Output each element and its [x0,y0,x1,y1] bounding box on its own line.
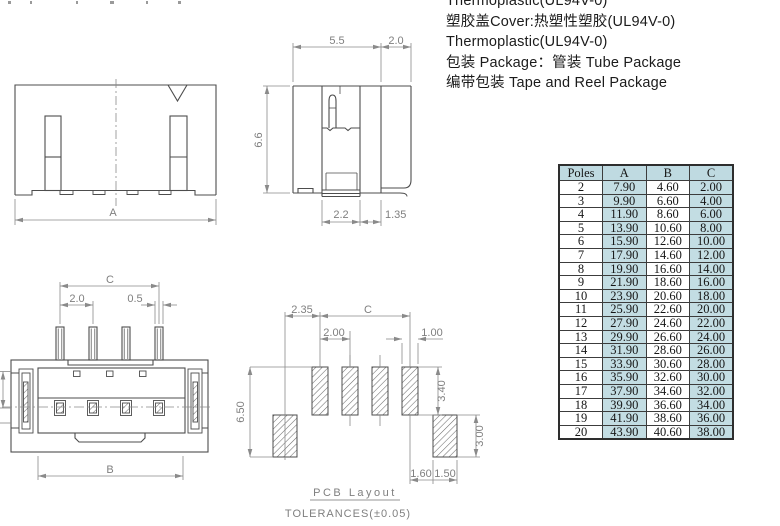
table-row: 39.906.604.00 [559,194,733,208]
table-cell: 34.00 [690,398,734,412]
table-cell: 14.00 [690,262,734,276]
table-cell: 18 [559,398,603,412]
table-cell: 11.90 [603,208,647,222]
table-cell: 19.90 [603,262,647,276]
table-row: 411.908.606.00 [559,208,733,222]
dim-label: 1.60 [410,468,431,480]
table-cell: 9 [559,276,603,290]
column-header: C [690,165,734,181]
dim-label: C [364,304,372,316]
column-header: A [603,165,647,181]
table-cell: 35.90 [603,371,647,385]
table-cell: 2.00 [690,181,734,195]
table-cell: 16.60 [646,262,690,276]
dim-label: 1.00 [421,327,442,339]
bottom-view-drawing: C 2.0 0.5 B [0,270,230,485]
dim-label: 1.35 [385,209,406,221]
table-cell: 12.60 [646,235,690,249]
dim-label: 6.50 [235,401,247,422]
table-cell: 16.00 [690,276,734,290]
table-header: PolesABC [559,165,733,181]
table-row: 1125.9022.6020.00 [559,303,733,317]
table-row: 2043.9040.6038.00 [559,425,733,439]
table-cell: 6 [559,235,603,249]
table-cell: 36.60 [646,398,690,412]
table-cell: 39.90 [603,398,647,412]
table-cell: 36.00 [690,412,734,426]
dim-label: 2.2 [333,209,348,221]
table-row: 615.9012.6010.00 [559,235,733,249]
table-cell: 7 [559,248,603,262]
table-cell: 19 [559,412,603,426]
table-cell: 38.60 [646,412,690,426]
dim-label: A [109,207,117,219]
table-cell: 18.60 [646,276,690,290]
dim-label: 2.0 [69,293,84,305]
dim-label: B [106,464,113,476]
table-row: 1329.9026.6024.00 [559,330,733,344]
table-row: 1533.9030.6028.00 [559,357,733,371]
table-cell: 14.60 [646,248,690,262]
dim-label: 6.6 [253,132,265,147]
table-cell: 34.60 [646,384,690,398]
table-cell: 8.60 [646,208,690,222]
table-cell: 8.00 [690,221,734,235]
table-cell: 8 [559,262,603,276]
table-row: 1737.9034.6032.00 [559,384,733,398]
poles-table: PolesABC 27.904.602.0039.906.604.00411.9… [558,164,734,440]
table-cell: 28.00 [690,357,734,371]
table-cell: 15.90 [603,235,647,249]
table-cell: 12 [559,316,603,330]
table-row: 717.9014.6012.00 [559,248,733,262]
dim-label: C [106,274,114,286]
table-cell: 26.00 [690,344,734,358]
dim-label: 3.40 [436,380,448,401]
column-header: B [646,165,690,181]
note-line: Thermoplastic(UL94V-0) [446,0,681,12]
datasheet-page: Thermoplastic(UL94V-0) 塑胶盖Cover:热塑性塑胶(UL… [0,0,780,526]
table-cell: 14 [559,344,603,358]
side-view-drawing: 5.5 2.0 6.6 2.2 1.35 [250,30,440,240]
table-cell: 40.60 [646,425,690,439]
table-cell: 17 [559,384,603,398]
table-cell: 22.60 [646,303,690,317]
column-header: Poles [559,165,603,181]
table-cell: 41.90 [603,412,647,426]
table-cell: 13 [559,330,603,344]
table-cell: 11 [559,303,603,317]
table-cell: 6.60 [646,194,690,208]
table-cell: 4 [559,208,603,222]
table-cell: 30.60 [646,357,690,371]
table-cell: 31.90 [603,344,647,358]
table-cell: 32.60 [646,371,690,385]
table-cell: 23.90 [603,289,647,303]
note-line: 编带包装 Tape and Reel Package [446,73,681,94]
note-line: 包装 Package：管装 Tube Package [446,53,681,74]
table-cell: 5 [559,221,603,235]
pcb-layout-title: PCB Layout [313,487,397,499]
note-line: 塑胶盖Cover:热塑性塑胶(UL94V-0) [446,12,681,33]
note-line: Thermoplastic(UL94V-0) [446,32,681,53]
table-cell: 24.60 [646,316,690,330]
table-row: 1635.9032.6030.00 [559,371,733,385]
table-cell: 16 [559,371,603,385]
pcb-layout-drawing: 2.35 C 2.00 1.00 6.50 3.40 3.00 1.60 1.5… [230,300,500,526]
table-cell: 17.90 [603,248,647,262]
table-cell: 2 [559,181,603,195]
front-view-drawing: A [10,60,240,230]
dim-label: 5.5 [329,35,344,47]
dim-label: 1.50 [434,468,455,480]
table-cell: 20.00 [690,303,734,317]
table-cell: 28.60 [646,344,690,358]
table-cell: 12.00 [690,248,734,262]
table-cell: 9.90 [603,194,647,208]
table-cell: 30.00 [690,371,734,385]
table-cell: 15 [559,357,603,371]
table-cell: 26.60 [646,330,690,344]
table-cell: 20 [559,425,603,439]
table-cell: 33.90 [603,357,647,371]
table-cell: 10.00 [690,235,734,249]
table-cell: 25.90 [603,303,647,317]
dim-label: 3.00 [474,425,486,446]
table-cell: 10.60 [646,221,690,235]
table-cell: 10 [559,289,603,303]
tolerance-note: TOLERANCES(±0.05) [285,508,411,520]
table-cell: 22.00 [690,316,734,330]
table-row: 513.9010.608.00 [559,221,733,235]
table-cell: 3 [559,194,603,208]
table-row: 1227.9024.6022.00 [559,316,733,330]
table-row: 1941.9038.6036.00 [559,412,733,426]
table-cell: 18.00 [690,289,734,303]
table-cell: 13.90 [603,221,647,235]
table-cell: 7.90 [603,181,647,195]
table-row: 921.9018.6016.00 [559,276,733,290]
table-cell: 24.00 [690,330,734,344]
material-notes: Thermoplastic(UL94V-0) 塑胶盖Cover:热塑性塑胶(UL… [446,0,681,94]
table-row: 1839.9036.6034.00 [559,398,733,412]
table-cell: 21.90 [603,276,647,290]
table-cell: 6.00 [690,208,734,222]
table-cell: 20.60 [646,289,690,303]
dim-label: 2.00 [323,327,344,339]
table-row: 27.904.602.00 [559,181,733,195]
table-cell: 4.00 [690,194,734,208]
dim-label: 2.0 [388,35,403,47]
dim-label: 2.35 [291,304,312,316]
table-row: 819.9016.6014.00 [559,262,733,276]
table-cell: 43.90 [603,425,647,439]
table-cell: 38.00 [690,425,734,439]
table-row: 1023.9020.6018.00 [559,289,733,303]
table-cell: 4.60 [646,181,690,195]
dim-label: 0.5 [127,293,142,305]
table-cell: 29.90 [603,330,647,344]
table-cell: 32.00 [690,384,734,398]
table-cell: 37.90 [603,384,647,398]
table-row: 1431.9028.6026.00 [559,344,733,358]
table-cell: 27.90 [603,316,647,330]
